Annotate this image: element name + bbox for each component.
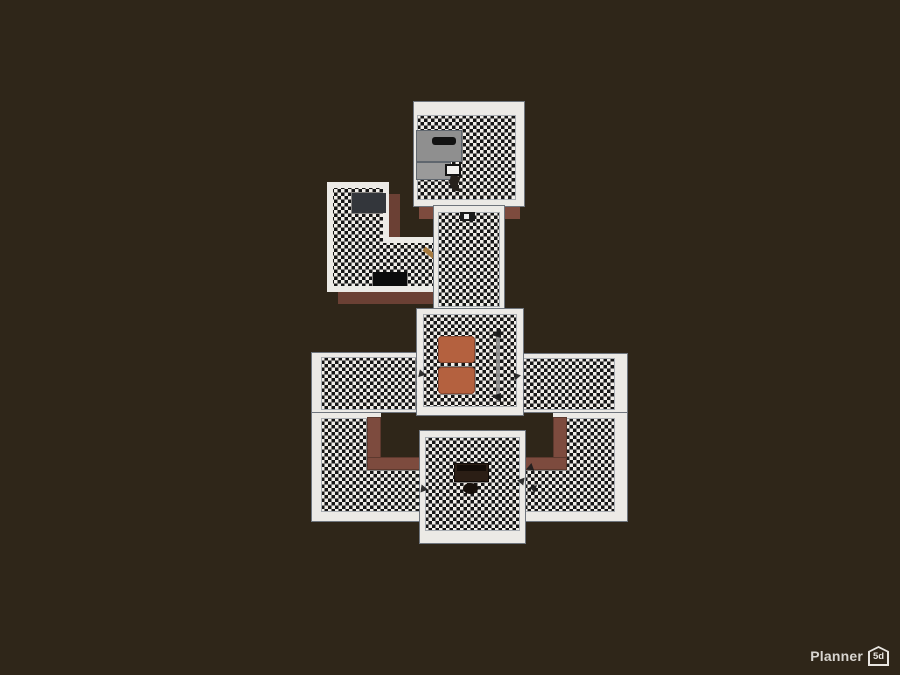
scene-canvas[interactable] [0,0,900,675]
door-arrow-icon [516,476,524,485]
door-arrow-icon [418,369,427,378]
room-left-wing[interactable] [312,353,419,414]
room-l-shaped[interactable] [327,182,439,292]
bar-end-cap [491,393,501,402]
desk[interactable] [454,463,489,482]
room-right-wing[interactable] [521,354,627,414]
toilet[interactable] [445,164,461,176]
logo-badge-label: 5d [868,652,889,662]
wall-fixture[interactable] [460,212,475,221]
logo-wordmark: Planner [810,648,863,664]
sink-basin [432,137,456,145]
desk-top [457,465,486,471]
gray-cabinet[interactable] [417,131,461,161]
orange-armchair[interactable] [438,367,475,394]
room-corridor[interactable] [434,206,504,311]
door-arrow-icon [528,483,537,493]
door-arrow-icon [513,371,521,380]
dresser[interactable] [352,193,386,213]
long-bar-item[interactable] [497,332,500,401]
door-arrow-icon [420,485,428,494]
planner5d-watermark: Planner 5d [810,646,889,666]
toilet-seat-icon [449,175,461,192]
black-sofa[interactable] [373,272,407,286]
room-office[interactable] [420,431,525,543]
room-center[interactable] [417,309,523,415]
planner5d-house-icon: 5d [868,646,889,666]
orange-armchair[interactable] [438,336,475,363]
bar-end-cap [491,329,501,338]
fixture-knob-icon [464,214,469,219]
office-chair[interactable] [463,483,478,494]
